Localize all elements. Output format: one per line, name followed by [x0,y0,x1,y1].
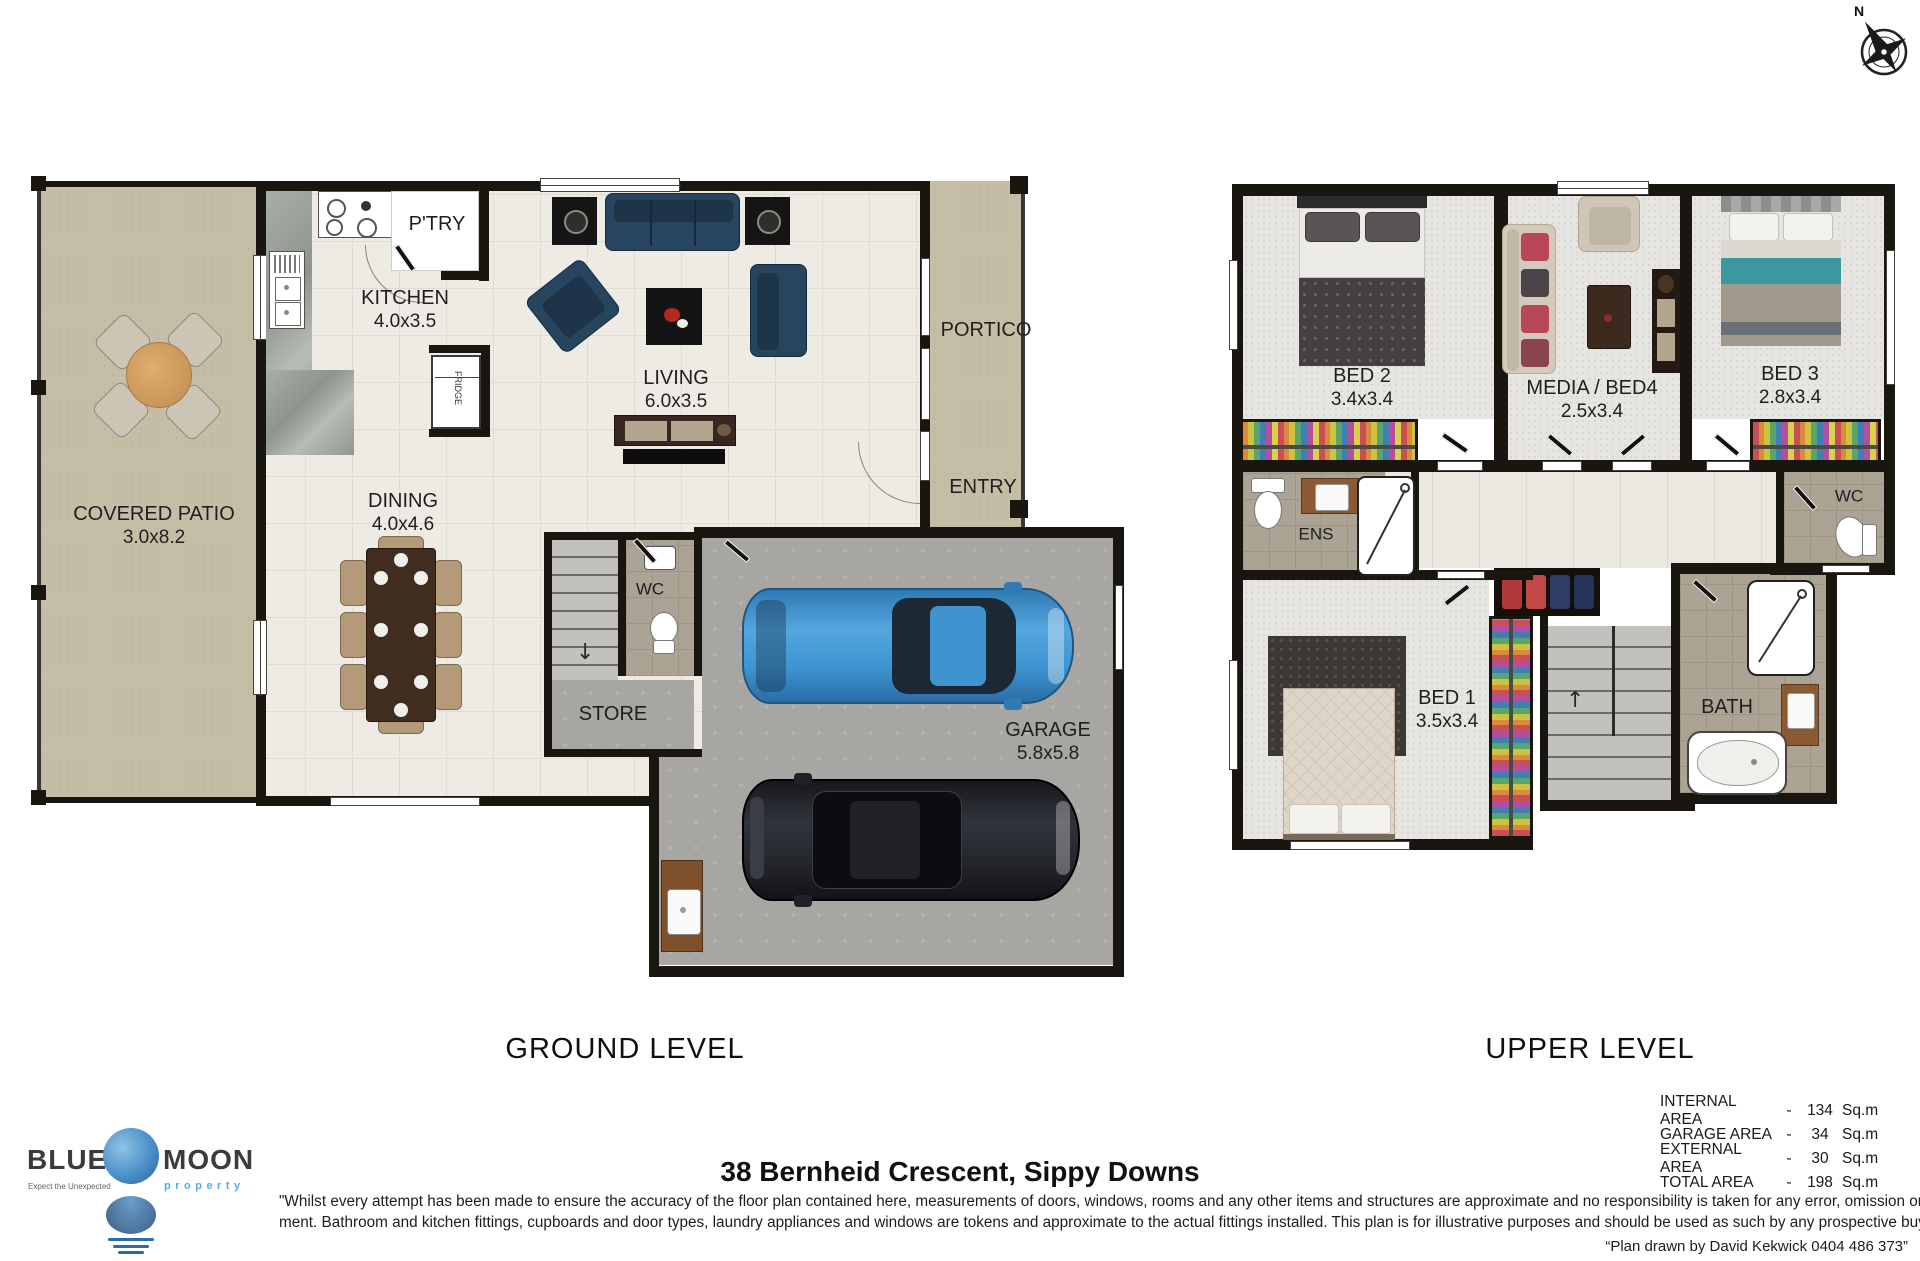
area-sep: - [1780,1126,1798,1144]
wall-segment [1826,574,1837,804]
wall-segment [37,181,258,187]
window [253,620,267,695]
room-label-ens: ENS [1299,525,1334,546]
room-name: PORTICO [941,318,1032,342]
media-tv-cabinet [1652,269,1680,373]
logo-ripple [118,1251,144,1254]
area-sep: - [1780,1174,1798,1192]
bath-vanity [1781,684,1819,746]
dining-chair [340,612,368,658]
ens-vanity [1301,478,1359,514]
stairs-down-arrow: ↓ [576,640,594,665]
bed2-bed [1297,196,1427,366]
room-name: BED 2 [1331,364,1393,388]
wall-segment [694,527,1123,538]
media-coffee-table [1587,285,1631,349]
laundry-tub [661,860,703,952]
dining-chair [434,612,462,658]
hall-floor [1385,472,1784,568]
area-sep: - [1780,1102,1798,1120]
logo-word-moon: MOON [163,1144,254,1176]
wall-segment [1671,563,1776,574]
side-table [552,197,597,245]
kitchen-counter-return [266,370,354,455]
room-dims: 6.0x3.5 [643,391,709,414]
room-dims: 5.8x5.8 [1005,743,1091,766]
patio-table [126,342,192,408]
logo-subword-property: property [164,1180,245,1192]
entry-door-gap [920,431,930,481]
room-label-bath: BATH [1701,695,1753,719]
car-black [742,775,1080,905]
room-label-wc-upper: WC [1835,487,1863,508]
area-label: INTERNAL AREA [1660,1093,1780,1129]
room-name: LIVING [643,366,709,390]
room-name: BATH [1701,695,1753,719]
window [540,178,680,192]
window [1886,250,1895,385]
wall-segment [479,181,489,281]
kitchen-sink [269,251,305,329]
room-label-bed3: BED 3 2.8x3.4 [1759,362,1821,410]
area-unit: Sq.m [1842,1150,1894,1168]
window [1115,585,1123,670]
room-label-store: STORE [579,702,648,726]
stove-cooktop [318,191,392,238]
logo-word-blue: BLUE [27,1144,107,1176]
window [330,797,480,806]
door-gap [1437,461,1483,471]
wall-segment [37,181,41,803]
room-name: BED 3 [1759,362,1821,386]
covered-patio-floor [37,181,258,803]
dining-chair [434,560,462,606]
room-label-kitchen: KITCHEN 4.0x3.5 [361,286,449,334]
media-sofa [1502,224,1556,374]
window [1290,841,1410,850]
upper-level-title: UPPER LEVEL [1485,1033,1694,1066]
patio-table-set [95,313,221,435]
tv-unit [614,415,736,446]
area-label: EXTERNAL AREA [1660,1141,1780,1177]
area-unit: Sq.m [1842,1102,1894,1120]
room-name: ENTRY [949,475,1016,499]
wall-segment [649,966,1124,977]
wall-segment [1776,472,1784,563]
coffee-table-art [646,288,702,345]
logo-ripple [113,1245,149,1248]
wall-segment [1021,181,1025,538]
compass-north-label: N [1854,3,1864,19]
room-name: STORE [579,702,648,726]
room-label-pantry: P'TRY [409,212,466,236]
portico-post [1010,500,1028,518]
wall-segment [618,540,626,676]
room-label-wc-ground: WC [636,580,664,601]
room-name: GARAGE [1005,718,1091,742]
ens-shower [1357,476,1415,576]
room-dims: 4.0x3.5 [361,311,449,334]
room-name: BED 1 [1416,686,1478,710]
patio-post [31,585,46,600]
patio-post [31,176,46,191]
wall-segment [544,749,702,757]
room-name: ENS [1299,525,1334,546]
logo-moon-icon [103,1128,159,1184]
window [1557,181,1649,195]
bed1-bed [1283,688,1395,840]
loveseat [750,264,807,357]
side-table [745,197,790,245]
patio-post [31,790,46,805]
area-unit: Sq.m [1842,1174,1894,1192]
floorplan-sheet: N COVERED PATIO 3.0x8.2 [0,0,1920,1261]
dining-chair [434,664,462,710]
room-name: WC [636,580,664,601]
room-dims: 2.8x3.4 [1759,387,1821,410]
door-gap [1542,461,1582,471]
room-name: WC [1835,487,1863,508]
room-dims: 3.4x3.4 [1331,389,1393,412]
room-label-living: LIVING 6.0x3.5 [643,366,709,414]
window [921,258,930,336]
vent-grille [1822,565,1870,573]
room-name: P'TRY [409,212,466,236]
room-label-bed2: BED 2 3.4x3.4 [1331,364,1393,412]
door-gap [1612,461,1652,471]
dining-chair [340,664,368,710]
stairs-up-arrow: ↑ [1566,688,1584,713]
wall-segment [37,797,258,803]
dining-table [366,548,436,722]
window [1229,260,1238,350]
room-label-media: MEDIA / BED4 2.5x3.4 [1526,376,1657,424]
logo-moon-reflection [106,1196,156,1234]
logo-tagline: Expect the Unexpected [28,1182,111,1191]
wall-segment [544,532,702,540]
room-dims: 3.0x8.2 [73,527,235,550]
media-armchair [1578,196,1640,252]
window [1229,660,1238,770]
wall-segment [441,271,489,280]
disclaimer-line-2: ment. Bathroom and kitchen fittings, cup… [279,1212,1920,1233]
wc-upper-toilet [1834,514,1878,562]
area-unit: Sq.m [1842,1126,1894,1144]
property-address: 38 Bernheid Crescent, Sippy Downs [720,1156,1199,1188]
room-label-portico: PORTICO [941,318,1032,342]
window [253,255,267,340]
bathtub [1687,731,1787,795]
fridge: FRIDGE [431,355,481,429]
area-value: 134 [1798,1102,1842,1120]
area-sep: - [1780,1150,1798,1168]
stairs-rail [1612,626,1615,736]
area-value: 30 [1798,1150,1842,1168]
room-name: COVERED PATIO [73,502,235,526]
wall-segment [649,749,659,971]
television [623,449,725,464]
bed3-bed [1721,196,1841,346]
wall-segment [1540,616,1548,811]
plan-credit: “Plan drawn by David Kekwick 0404 486 37… [1605,1238,1908,1255]
room-label-patio: COVERED PATIO 3.0x8.2 [73,502,235,550]
wall-segment [1680,184,1692,472]
door-leaf [1714,433,1741,457]
area-value: 198 [1798,1174,1842,1192]
room-label-entry: ENTRY [949,475,1016,499]
fridge-label: FRIDGE [453,371,463,405]
area-value: 34 [1798,1126,1842,1144]
patio-post [31,380,46,395]
walk-in-robe [1489,616,1533,839]
portico-post [1010,176,1028,194]
sofa [605,193,740,251]
compass-rose-icon: N [1834,0,1920,88]
ens-toilet [1248,478,1286,530]
dining-chair [340,560,368,606]
logo-ripple [108,1238,154,1241]
car-blue [742,584,1074,708]
room-dims: 4.0x4.6 [368,514,438,537]
ground-level-title: GROUND LEVEL [505,1033,744,1066]
room-name: DINING [368,489,438,513]
wall-segment [429,429,490,437]
door-gap [1437,571,1485,579]
dining-set [340,536,460,732]
bath-shower [1747,580,1815,676]
disclaimer-text: "Whilst every attempt has been made to e… [279,1191,1920,1233]
wall-segment [1671,568,1680,804]
room-label-bed1: BED 1 3.5x3.4 [1416,686,1478,734]
wall-segment [544,532,552,757]
room-dims: 3.5x3.4 [1416,711,1478,734]
room-name: KITCHEN [361,286,449,310]
window [921,348,930,420]
room-name: MEDIA / BED4 [1526,376,1657,400]
area-summary-table: INTERNAL AREA - 134 Sq.m GARAGE AREA - 3… [1660,1099,1894,1195]
wc-toilet [648,612,678,654]
wall-segment [694,540,702,676]
door-leaf [1441,432,1469,454]
room-label-garage: GARAGE 5.8x5.8 [1005,718,1091,766]
door-gap [1706,461,1750,471]
wall-segment [1540,800,1695,811]
area-label: TOTAL AREA [1660,1174,1780,1192]
wall-segment [481,345,490,437]
room-dims: 2.5x3.4 [1526,401,1657,424]
room-label-dining: DINING 4.0x4.6 [368,489,438,537]
